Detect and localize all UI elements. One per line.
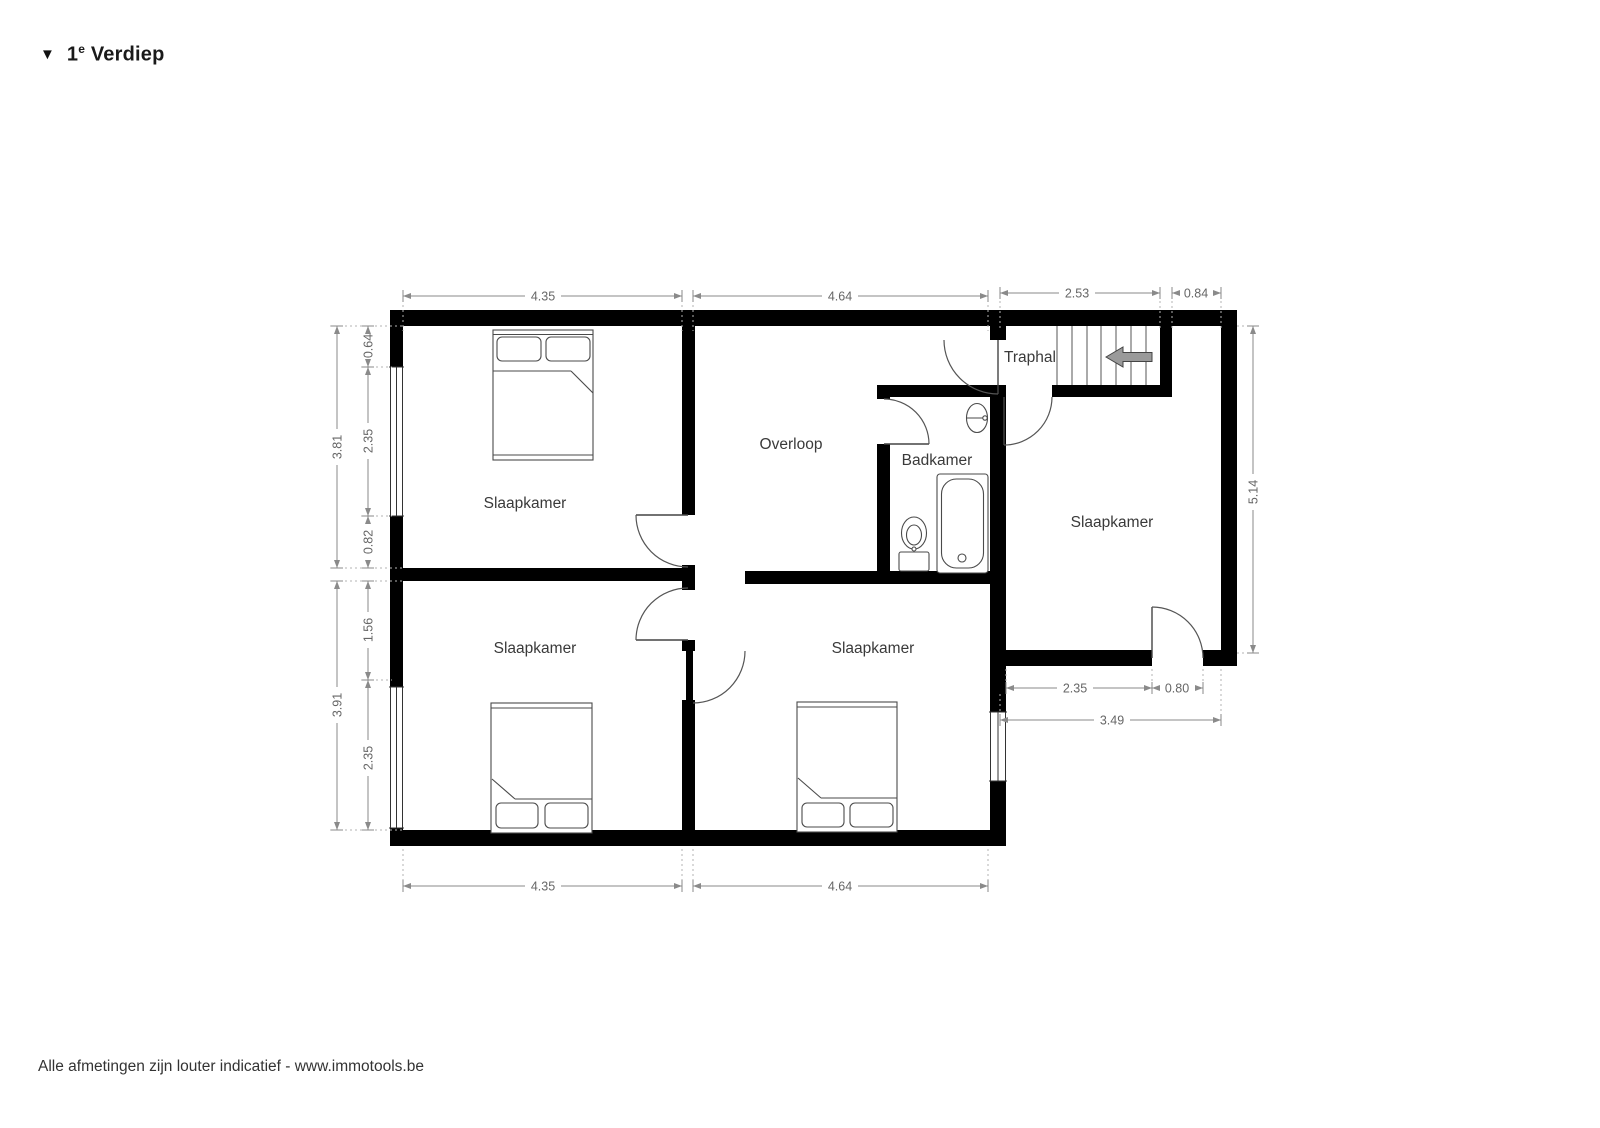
dim-left-lower-height: 3.91 bbox=[331, 581, 345, 830]
dim-top-stair-opening: 0.84 bbox=[1172, 287, 1221, 301]
floorplan-drawing: Slaapkamer Slaapkamer Slaapkamer Slaapka… bbox=[0, 0, 1600, 1128]
toilet-button bbox=[912, 547, 916, 551]
wall-segment bbox=[390, 830, 1006, 846]
disclaimer-text: Alle afmetingen zijn louter indicatief -… bbox=[38, 1058, 424, 1076]
door-bedroom-top-left bbox=[636, 515, 688, 567]
stairs-direction-arrow-icon bbox=[1106, 347, 1152, 367]
wall-segment bbox=[990, 310, 1006, 340]
dim-top-middle-width: 4.64 bbox=[693, 290, 988, 304]
bathtub-drain bbox=[958, 554, 966, 562]
bed-pillow bbox=[545, 803, 588, 828]
door-bedroom-bottom-left bbox=[636, 588, 688, 640]
dim-bottom-left-width: 4.35 bbox=[403, 880, 682, 894]
dim-left-wall-to-window: 0.64 bbox=[362, 326, 376, 367]
wall-segment bbox=[1221, 310, 1237, 666]
wall-segment bbox=[390, 516, 403, 687]
dim-bottomright-door-width: 0.80 bbox=[1152, 682, 1203, 696]
svg-text:0.80: 0.80 bbox=[1165, 682, 1189, 696]
bed-bottom-left bbox=[491, 703, 592, 833]
bed-pillow bbox=[497, 337, 541, 361]
sink bbox=[966, 404, 988, 433]
dim-bottom-middle-width: 4.64 bbox=[693, 880, 988, 894]
bed-pillow bbox=[802, 803, 844, 827]
wall-segment bbox=[990, 650, 1152, 666]
toilet-seat bbox=[907, 525, 922, 545]
bed-bottom-middle bbox=[797, 702, 897, 832]
room-label-stair-hall: Traphal bbox=[1004, 349, 1056, 366]
dim-right-room-height: 5.14 bbox=[1247, 326, 1261, 653]
sink-tap bbox=[983, 416, 987, 420]
svg-text:4.64: 4.64 bbox=[828, 290, 852, 304]
room-label-bedroom-top-left: Slaapkamer bbox=[484, 495, 567, 512]
toilet-tank bbox=[899, 552, 929, 571]
dimensions: 4.35 4.64 2.53 0.84 4.35 bbox=[331, 287, 1261, 894]
svg-text:5.14: 5.14 bbox=[1247, 480, 1261, 504]
svg-text:2.35: 2.35 bbox=[362, 429, 376, 453]
door-bedroom-right-top bbox=[1004, 397, 1052, 445]
window-left-upper bbox=[389, 367, 404, 516]
svg-text:2.35: 2.35 bbox=[362, 746, 376, 770]
window-right-lower bbox=[989, 712, 1007, 781]
dim-top-left-width: 4.35 bbox=[403, 290, 682, 304]
wall-segment bbox=[990, 781, 1006, 846]
dim-top-stairhall-width: 2.53 bbox=[1000, 287, 1160, 301]
dim-bottomright-total-width: 3.49 bbox=[1000, 714, 1221, 728]
wall-segment bbox=[1203, 650, 1237, 666]
room-label-bedroom-bottom-left: Slaapkamer bbox=[494, 640, 577, 657]
svg-text:3.81: 3.81 bbox=[331, 435, 345, 459]
bed-pillow bbox=[850, 803, 893, 827]
svg-text:3.49: 3.49 bbox=[1100, 714, 1124, 728]
svg-text:0.84: 0.84 bbox=[1184, 287, 1208, 301]
floorplan-page: ▼ 1e Verdiep bbox=[0, 0, 1600, 1128]
wall-segment bbox=[390, 326, 403, 367]
wall-segment bbox=[390, 310, 1237, 326]
door-bedroom-right-bottom bbox=[1152, 607, 1203, 658]
bed-pillow bbox=[546, 337, 590, 361]
room-label-bedroom-right: Slaapkamer bbox=[1071, 514, 1154, 531]
room-label-hallway: Overloop bbox=[760, 436, 823, 453]
room-label-bathroom: Badkamer bbox=[902, 452, 973, 469]
svg-text:4.35: 4.35 bbox=[531, 290, 555, 304]
wall-segment bbox=[877, 385, 1004, 397]
svg-text:2.35: 2.35 bbox=[1063, 682, 1087, 696]
room-label-bedroom-bottom-middle: Slaapkamer bbox=[832, 640, 915, 657]
svg-text:3.91: 3.91 bbox=[331, 693, 345, 717]
dim-left-lower-wall-segment: 1.56 bbox=[362, 581, 376, 680]
wall-segment bbox=[682, 326, 695, 515]
bed-top-left bbox=[493, 330, 593, 460]
svg-text:0.82: 0.82 bbox=[362, 530, 376, 554]
door-bedroom-bottom-middle bbox=[686, 651, 745, 703]
staircase bbox=[1057, 326, 1152, 385]
bathtub bbox=[937, 474, 988, 573]
door-bathroom bbox=[884, 399, 929, 444]
dimension-leader-lines bbox=[330, 296, 1262, 883]
svg-text:4.64: 4.64 bbox=[828, 880, 852, 894]
svg-text:0.64: 0.64 bbox=[362, 334, 376, 358]
bed-pillow bbox=[496, 803, 538, 828]
wall-segment bbox=[682, 640, 695, 651]
svg-text:1.56: 1.56 bbox=[362, 618, 376, 642]
wall-segment bbox=[1052, 385, 1172, 397]
svg-text:4.35: 4.35 bbox=[531, 880, 555, 894]
wall-segment bbox=[1160, 310, 1172, 397]
dim-left-upper-height: 3.81 bbox=[331, 326, 345, 568]
wall-segment bbox=[682, 565, 695, 590]
dim-left-lower-window: 2.35 bbox=[362, 680, 376, 830]
wall-segment bbox=[682, 700, 695, 830]
dim-left-window-to-wall: 0.82 bbox=[362, 516, 376, 568]
wall-segment bbox=[877, 444, 890, 584]
dim-left-upper-window: 2.35 bbox=[362, 367, 376, 516]
svg-text:2.53: 2.53 bbox=[1065, 287, 1089, 301]
wall-segment bbox=[403, 568, 682, 581]
dim-bottomright-wall-to-door: 2.35 bbox=[1006, 682, 1152, 696]
window-left-lower bbox=[389, 687, 404, 828]
windows bbox=[389, 367, 1007, 828]
toilet bbox=[899, 517, 929, 571]
